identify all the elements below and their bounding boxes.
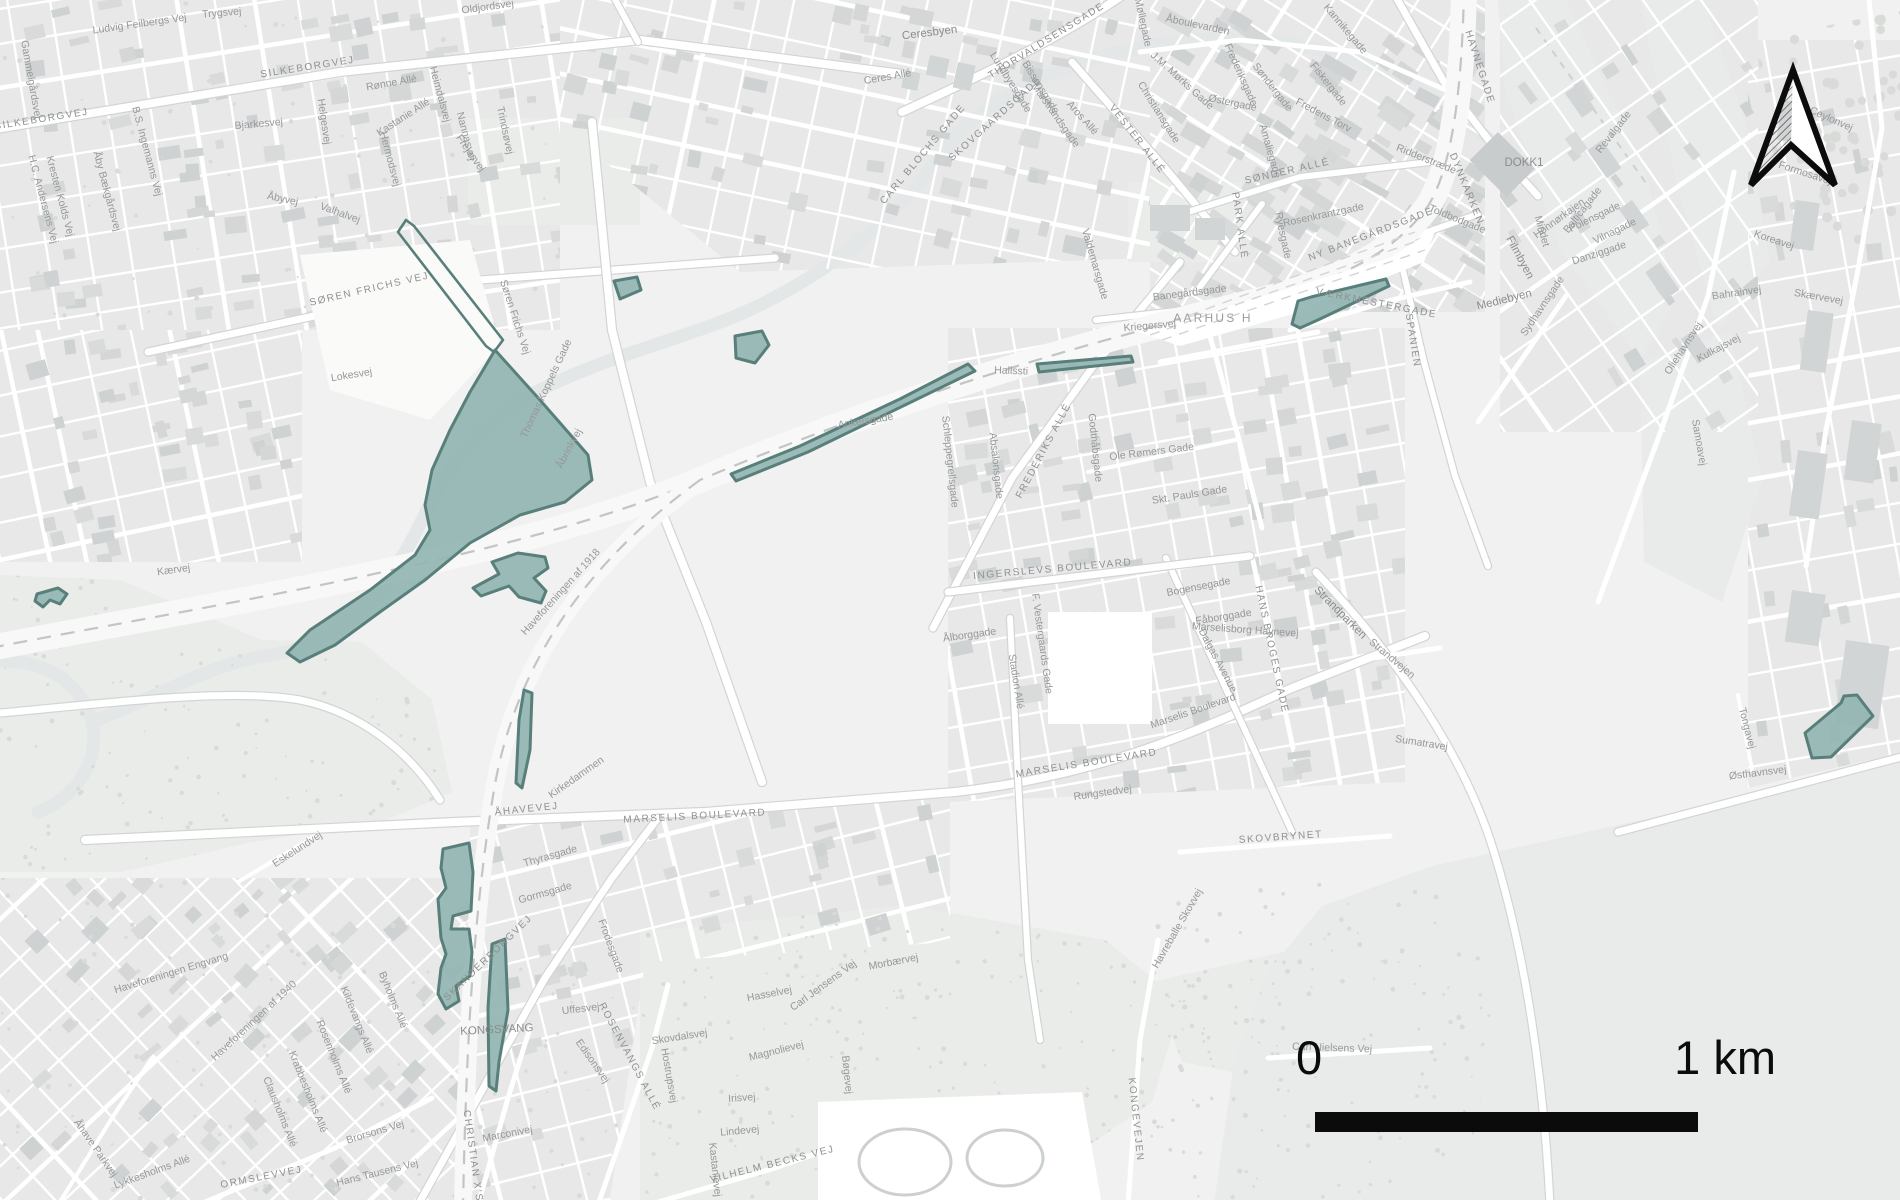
tree-dot	[85, 901, 89, 905]
tree-dot	[729, 1037, 733, 1041]
tree-dot	[413, 737, 416, 740]
building-block	[195, 195, 207, 208]
tree-dot	[161, 817, 163, 819]
tree-dot	[1182, 1004, 1187, 1009]
tree-dot	[379, 803, 384, 808]
tree-dot	[564, 1071, 567, 1074]
tree-dot	[17, 1166, 20, 1169]
tree-dot	[1251, 1036, 1253, 1038]
building-block	[195, 306, 212, 320]
building-block	[1756, 720, 1768, 736]
building-block	[330, 86, 350, 104]
tree-dot	[196, 1042, 198, 1044]
tree-dot	[1309, 943, 1312, 946]
tree-dot	[391, 923, 396, 928]
tree-dot	[287, 1178, 292, 1183]
tree-dot	[1321, 1195, 1325, 1199]
tree-dot	[286, 1098, 291, 1103]
tree-dot	[129, 683, 134, 688]
tree-dot	[66, 663, 69, 666]
tree-dot	[376, 698, 378, 700]
tree-dot	[614, 1123, 618, 1127]
building-block	[527, 96, 536, 103]
tree-dot	[297, 276, 299, 278]
tree-dot	[1457, 952, 1461, 956]
tree-dot	[1282, 961, 1286, 965]
tree-dot	[1475, 956, 1479, 960]
tree-dot	[1790, 35, 1799, 44]
tree-dot	[433, 769, 436, 772]
tree-dot	[1178, 1064, 1183, 1069]
tree-dot	[1357, 942, 1362, 947]
building-block	[1029, 19, 1042, 32]
tree-dot	[1228, 984, 1233, 989]
tree-dot	[794, 964, 799, 969]
tree-dot	[310, 1174, 314, 1178]
tree-dot	[218, 1132, 222, 1136]
tree-dot	[1448, 1020, 1453, 1025]
tree-dot	[784, 1022, 787, 1025]
tree-dot	[285, 755, 287, 757]
tree-dot	[862, 1033, 865, 1036]
tree-dot	[409, 129, 412, 132]
tree-dot	[391, 780, 396, 785]
tree-dot	[1187, 984, 1191, 988]
tree-dot	[139, 1117, 142, 1120]
tree-dot	[288, 268, 291, 271]
tree-dot	[165, 1189, 169, 1193]
tree-dot	[377, 723, 380, 726]
tree-dot	[726, 1020, 730, 1024]
tree-dot	[707, 967, 709, 969]
tree-dot	[382, 178, 387, 183]
tree-dot	[1876, 25, 1885, 34]
tree-dot	[1244, 1018, 1249, 1023]
tree-dot	[516, 1099, 520, 1103]
tree-dot	[827, 1019, 831, 1023]
tree-dot	[1887, 86, 1896, 95]
tree-dot	[683, 1002, 688, 1007]
tree-dot	[836, 1030, 839, 1033]
tree-dot	[130, 922, 135, 927]
tree-dot	[126, 1071, 130, 1075]
tree-dot	[1259, 992, 1261, 994]
tree-dot	[1388, 1180, 1392, 1184]
tree-dot	[1191, 984, 1195, 988]
tree-dot	[58, 918, 62, 922]
place-label: DOKK1	[1505, 157, 1544, 169]
tree-dot	[1203, 995, 1208, 1000]
building-block	[614, 69, 630, 87]
tree-dot	[108, 751, 111, 754]
tree-dot	[956, 960, 960, 964]
tree-dot	[404, 1028, 408, 1032]
building-block	[1096, 179, 1113, 196]
tree-dot	[1176, 901, 1180, 905]
tree-dot	[231, 664, 234, 667]
building-block	[367, 234, 382, 242]
tree-dot	[699, 926, 704, 931]
tree-dot	[324, 658, 327, 661]
tree-dot	[1447, 986, 1450, 989]
tree-dot	[893, 990, 895, 992]
tree-dot	[814, 1167, 817, 1170]
tree-dot	[228, 1125, 232, 1129]
scale-bar: 0 1 km	[1296, 1030, 1796, 1140]
tree-dot	[1306, 991, 1311, 996]
tree-dot	[1373, 978, 1375, 980]
tree-dot	[49, 719, 54, 724]
tree-dot	[1077, 982, 1080, 985]
building-block	[242, 274, 261, 283]
building-block	[64, 339, 77, 355]
tree-dot	[1252, 1185, 1255, 1188]
tree-dot	[1140, 1090, 1145, 1095]
building-block	[447, 195, 458, 212]
tree-dot	[46, 1084, 51, 1089]
building-block	[43, 270, 60, 288]
tree-dot	[555, 254, 560, 259]
tree-dot	[799, 955, 803, 959]
tree-dot	[47, 824, 51, 828]
tree-dot	[74, 1021, 78, 1025]
tree-dot	[1249, 960, 1253, 964]
tree-dot	[343, 84, 347, 88]
tree-dot	[1263, 905, 1267, 909]
tree-dot	[1323, 938, 1325, 940]
tree-dot	[768, 1111, 772, 1115]
tree-dot	[440, 197, 442, 199]
tree-dot	[179, 992, 182, 995]
tree-dot	[532, 1185, 536, 1189]
tree-dot	[197, 247, 199, 249]
tree-dot	[111, 1143, 114, 1146]
tree-dot	[1192, 1099, 1194, 1101]
tree-dot	[1250, 979, 1252, 981]
tree-dot	[290, 949, 294, 953]
tree-dot	[417, 1173, 420, 1176]
tree-dot	[88, 852, 91, 855]
tree-dot	[221, 1160, 226, 1165]
tree-dot	[244, 25, 247, 28]
tree-dot	[296, 952, 301, 957]
tree-dot	[553, 1079, 557, 1083]
tree-dot	[1369, 1161, 1372, 1164]
tree-dot	[88, 204, 91, 207]
tree-dot	[65, 1126, 67, 1128]
building-block	[263, 144, 285, 162]
tree-dot	[791, 1115, 794, 1118]
tree-dot	[1110, 965, 1113, 968]
building-block	[1185, 382, 1208, 397]
tree-dot	[750, 1194, 754, 1198]
tree-dot	[62, 313, 67, 318]
tree-dot	[132, 277, 135, 280]
tree-dot	[1441, 1153, 1445, 1157]
tree-dot	[645, 1190, 648, 1193]
tree-dot	[939, 1061, 943, 1065]
tree-dot	[708, 1022, 713, 1027]
tree-dot	[126, 774, 129, 777]
tree-dot	[273, 22, 278, 27]
tree-dot	[404, 713, 408, 717]
tree-dot	[64, 858, 67, 861]
building-block	[260, 446, 277, 461]
tree-dot	[1243, 1113, 1248, 1118]
tree-dot	[1152, 1119, 1157, 1124]
tree-dot	[771, 1121, 774, 1124]
tree-dot	[97, 1019, 99, 1021]
tree-dot	[357, 154, 361, 158]
tree-dot	[136, 969, 140, 973]
tree-dot	[380, 1102, 384, 1106]
tree-dot	[5, 893, 10, 898]
building-block	[185, 427, 205, 446]
stadium-oval	[859, 1129, 951, 1195]
tree-dot	[765, 1181, 770, 1186]
tree-dot	[549, 1149, 553, 1153]
tree-dot	[1190, 1023, 1195, 1028]
tree-dot	[698, 1040, 702, 1044]
tree-dot	[1285, 969, 1290, 974]
tree-dot	[222, 814, 225, 817]
tree-dot	[1182, 1150, 1185, 1153]
tree-dot	[302, 961, 306, 965]
construction-site	[1048, 612, 1152, 724]
tree-dot	[145, 857, 148, 860]
tree-dot	[30, 846, 33, 849]
tree-dot	[16, 599, 18, 601]
tree-dot	[286, 1048, 290, 1052]
scale-bar-rule	[1315, 1112, 1698, 1132]
tree-dot	[990, 975, 994, 979]
tree-dot	[289, 119, 294, 124]
tree-dot	[704, 996, 707, 999]
tree-dot	[80, 790, 84, 794]
tree-dot	[134, 1054, 139, 1059]
tree-dot	[801, 975, 804, 978]
tree-dot	[155, 685, 158, 688]
tree-dot	[147, 310, 150, 313]
building-block	[1154, 616, 1175, 630]
tree-dot	[481, 1108, 484, 1111]
tree-dot	[217, 792, 220, 795]
tree-dot	[1183, 980, 1186, 983]
building-block	[1328, 362, 1352, 380]
tree-dot	[1264, 960, 1268, 964]
tree-dot	[407, 179, 409, 181]
tree-dot	[763, 1028, 765, 1030]
building-block	[1866, 243, 1883, 261]
tree-dot	[757, 1098, 760, 1101]
tree-dot	[194, 296, 199, 301]
tree-dot	[1875, 14, 1886, 25]
tree-dot	[338, 976, 342, 980]
tree-dot	[734, 1145, 737, 1148]
building-block	[1311, 629, 1327, 646]
tree-dot	[605, 1130, 608, 1133]
tree-dot	[95, 613, 97, 615]
tree-dot	[844, 1037, 849, 1042]
tree-dot	[369, 811, 373, 815]
tree-dot	[573, 962, 577, 966]
tree-dot	[218, 649, 221, 652]
tree-dot	[55, 990, 57, 992]
building-block	[1029, 170, 1039, 183]
tree-dot	[188, 821, 192, 825]
tree-dot	[882, 937, 887, 942]
tree-dot	[917, 983, 921, 987]
tree-dot	[1199, 1151, 1202, 1154]
tree-dot	[811, 935, 814, 938]
tree-dot	[1086, 1087, 1089, 1090]
building-block	[1889, 466, 1898, 482]
tree-dot	[159, 884, 163, 888]
tree-dot	[367, 1020, 371, 1024]
tree-dot	[729, 1138, 733, 1142]
tree-dot	[1879, 77, 1888, 86]
tree-dot	[951, 1086, 954, 1089]
tree-dot	[917, 1047, 920, 1050]
tree-dot	[117, 170, 120, 173]
tree-dot	[1232, 1097, 1236, 1101]
tree-dot	[580, 1137, 585, 1142]
building-block	[866, 159, 885, 173]
tree-dot	[23, 855, 27, 859]
tree-dot	[238, 654, 242, 658]
building-block	[204, 434, 219, 448]
tree-dot	[265, 719, 269, 723]
building-block	[1280, 480, 1302, 501]
tree-dot	[1858, 96, 1866, 104]
tree-dot	[996, 930, 1000, 934]
tree-dot	[1390, 987, 1395, 992]
tree-dot	[1133, 980, 1137, 984]
tree-dot	[322, 761, 325, 764]
tree-dot	[1202, 1040, 1205, 1043]
tree-dot	[1861, 158, 1870, 167]
tree-dot	[321, 1095, 326, 1100]
tree-dot	[1258, 888, 1263, 893]
tree-dot	[668, 1137, 670, 1139]
tree-dot	[1080, 1040, 1083, 1043]
tree-dot	[1203, 970, 1207, 974]
tree-dot	[173, 229, 175, 231]
tree-dot	[805, 936, 807, 938]
tree-dot	[1281, 1026, 1286, 1031]
tree-dot	[411, 163, 414, 166]
tree-dot	[736, 1075, 738, 1077]
tree-dot	[796, 950, 798, 952]
base-map: GammelgårdsvejLudvig Feilbergs VejTrygsv…	[0, 0, 1900, 1200]
tree-dot	[1422, 991, 1426, 995]
tree-dot	[1201, 1032, 1204, 1035]
tree-dot	[322, 691, 326, 695]
tree-dot	[260, 950, 264, 954]
tree-dot	[1040, 989, 1043, 992]
tree-dot	[1397, 961, 1399, 963]
tree-dot	[122, 802, 124, 804]
tree-dot	[1281, 892, 1285, 896]
tree-dot	[254, 1100, 256, 1102]
tree-dot	[183, 705, 186, 708]
building-block	[248, 475, 262, 491]
tree-dot	[1193, 1175, 1197, 1179]
tree-dot	[308, 814, 313, 819]
tree-dot	[835, 923, 838, 926]
tree-dot	[551, 992, 554, 995]
tree-dot	[661, 982, 665, 986]
tree-dot	[105, 785, 108, 788]
tree-dot	[1210, 1097, 1214, 1101]
tree-dot	[899, 989, 903, 993]
tree-dot	[36, 618, 41, 623]
tree-dot	[4, 668, 6, 670]
tree-dot	[588, 1173, 591, 1176]
tree-dot	[875, 1057, 879, 1061]
tree-dot	[134, 214, 138, 218]
tree-dot	[1230, 1195, 1235, 1200]
tree-dot	[372, 809, 376, 813]
tree-dot	[168, 778, 173, 783]
tree-dot	[831, 1006, 834, 1009]
tree-dot	[7, 737, 12, 742]
building-block	[409, 17, 426, 31]
tree-dot	[1182, 1028, 1184, 1030]
tree-dot	[1070, 1011, 1072, 1013]
tree-dot	[1171, 1004, 1175, 1008]
tree-dot	[577, 1193, 582, 1198]
north-arrow-icon	[1738, 56, 1850, 202]
tree-dot	[1059, 1047, 1061, 1049]
tree-dot	[1019, 953, 1023, 957]
tree-dot	[543, 1044, 547, 1048]
tree-dot	[900, 995, 905, 1000]
tree-dot	[587, 1089, 589, 1091]
tree-dot	[1317, 883, 1321, 887]
tree-dot	[234, 911, 238, 915]
landmark-building	[1150, 205, 1190, 231]
tree-dot	[399, 734, 402, 737]
building-block	[185, 163, 200, 180]
building-block	[63, 248, 76, 260]
building-block	[1323, 348, 1337, 363]
building-block	[1764, 591, 1776, 607]
tree-dot	[130, 130, 135, 135]
tree-dot	[236, 723, 240, 727]
tree-dot	[24, 915, 27, 918]
tree-dot	[1173, 1035, 1177, 1039]
tree-dot	[1168, 996, 1170, 998]
tree-dot	[291, 102, 295, 106]
tree-dot	[1311, 968, 1314, 971]
tree-dot	[1121, 964, 1126, 969]
tree-dot	[698, 1110, 702, 1114]
tree-dot	[1037, 933, 1041, 937]
tree-dot	[53, 313, 55, 315]
tree-dot	[228, 173, 231, 176]
building-block	[1277, 407, 1297, 426]
tree-dot	[1327, 933, 1330, 936]
tree-dot	[1235, 1006, 1238, 1009]
tree-dot	[365, 233, 369, 237]
tree-dot	[254, 1187, 258, 1191]
tree-dot	[81, 99, 83, 101]
tree-dot	[652, 1120, 655, 1123]
tree-dot	[1085, 1093, 1090, 1098]
tree-dot	[282, 24, 285, 27]
map-canvas[interactable]: GammelgårdsvejLudvig Feilbergs VejTrygsv…	[0, 0, 1900, 1200]
